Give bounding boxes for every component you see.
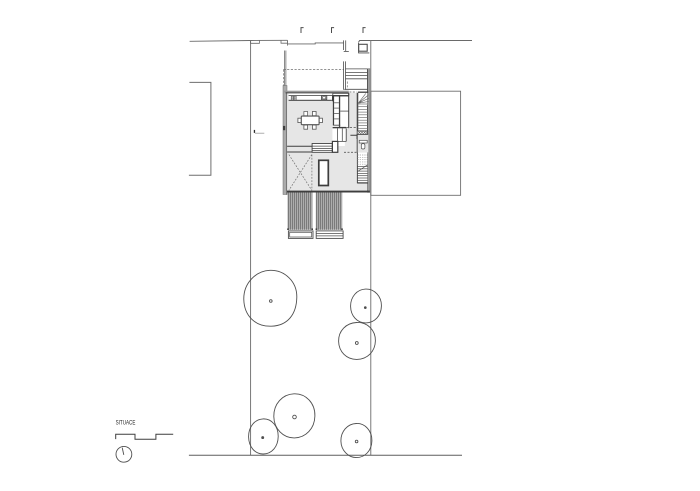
- svg-text:SITUACE: SITUACE: [116, 419, 136, 426]
